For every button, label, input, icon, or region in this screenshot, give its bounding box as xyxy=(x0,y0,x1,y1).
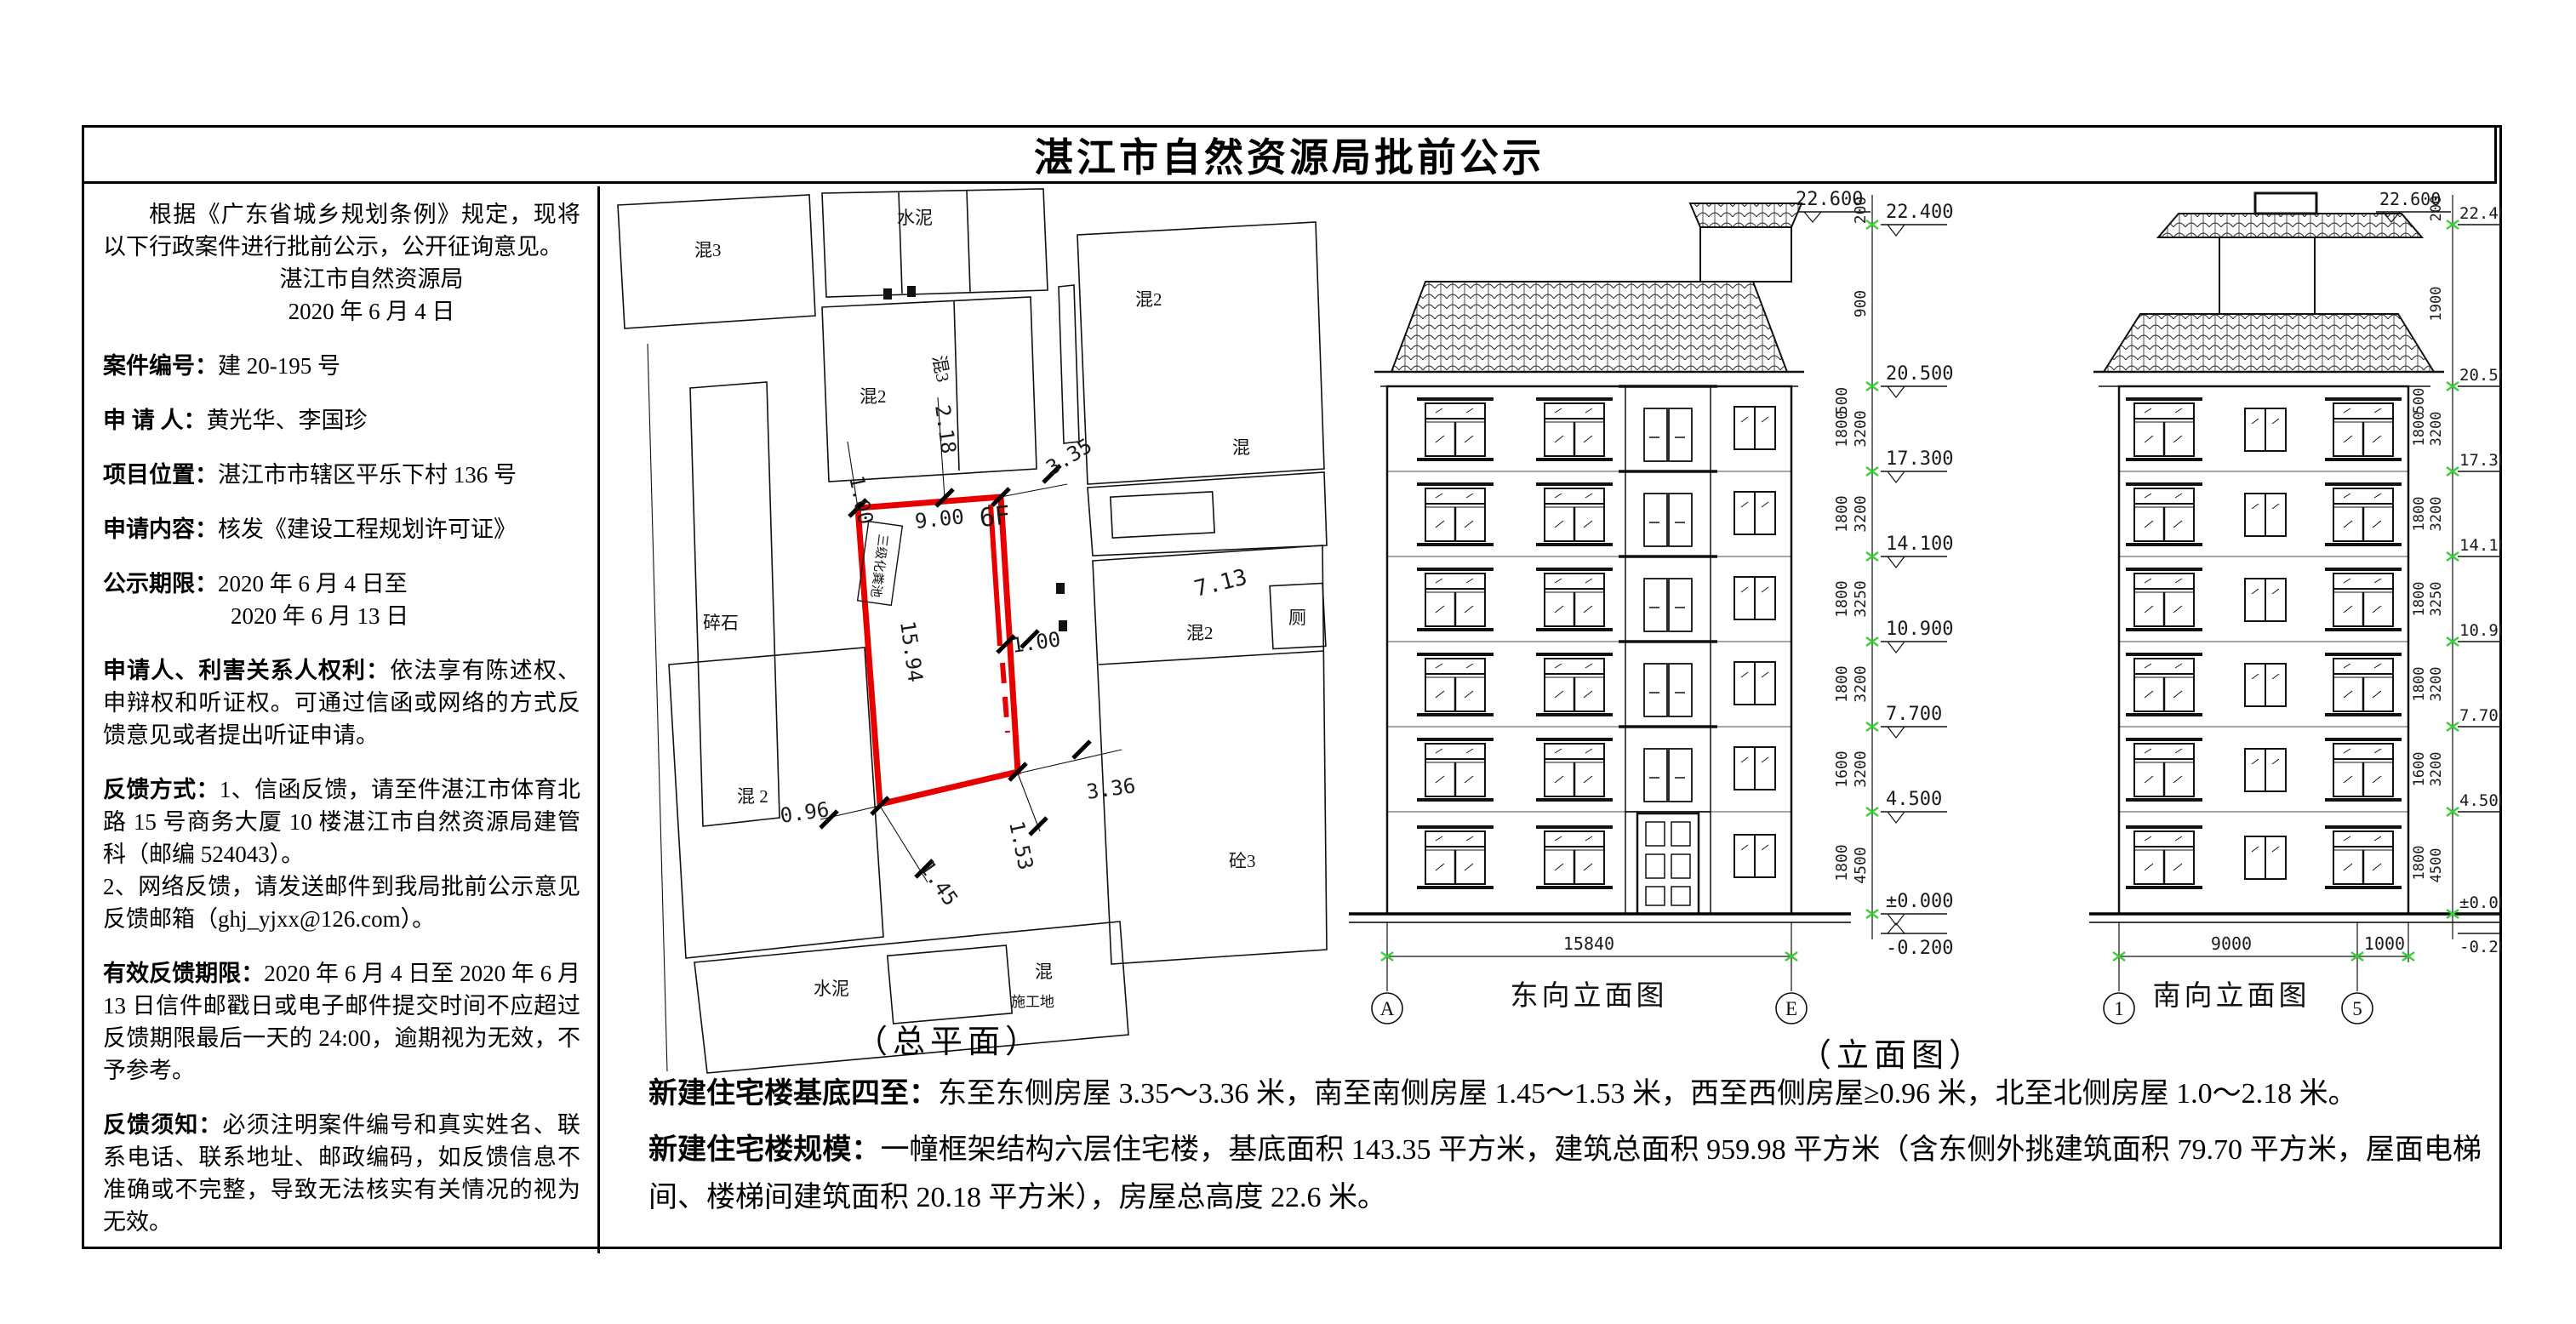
chain-window-dim: 1800 xyxy=(1833,495,1851,532)
footprint-label: 新建住宅楼基底四至： xyxy=(648,1078,938,1110)
chain-sub-dim: 200 xyxy=(2428,196,2445,222)
valid-label: 有效反馈期限： xyxy=(103,961,264,986)
agency-line: 湛江市自然资源局 xyxy=(103,263,580,295)
chain-storey-dim: 3200 xyxy=(2428,497,2445,532)
chain-storey-dim: 3200 xyxy=(1852,750,1870,787)
notice-paragraph: 反馈须知：必须注明案件编号和真实姓名、联系电话、联系地址、邮政编码，如反馈信息不… xyxy=(103,1109,580,1238)
intro-paragraph: 根据《广东省城乡规划条例》规定，现将以下行政案件进行批前公示，公开征询意见。 xyxy=(103,198,580,263)
level-mark: 4.500 xyxy=(1886,789,1942,810)
chain-window-dim: 1800 xyxy=(2411,412,2428,447)
level-mark: 4.500 xyxy=(2459,791,2502,810)
chain-window-dim: 1800 xyxy=(2411,582,2428,617)
case-number-line: 案件编号：建 20-195 号 xyxy=(103,350,580,382)
level-mark: -0.200 xyxy=(1886,938,1953,959)
chain-sub-dim: 1900 xyxy=(2428,287,2445,322)
south-elevation-label: 南向立面图 xyxy=(2153,980,2310,1012)
level-mark: 20.500 xyxy=(2459,366,2502,385)
level-mark: 14.100 xyxy=(1886,534,1953,555)
level-mark: 22.400 xyxy=(2459,204,2502,223)
plan-dim: 1.00 xyxy=(844,473,877,526)
chain-window-dim: 1800 xyxy=(2411,497,2428,532)
level-mark: 7.700 xyxy=(1886,704,1942,725)
level-mark: 20.500 xyxy=(1886,363,1953,385)
plan-dim: 1.00 xyxy=(1010,627,1062,658)
applicant-line: 申 请 人：黄光华、李国珍 xyxy=(103,404,580,437)
chain-storey-dim: 3250 xyxy=(2428,582,2445,617)
feedback-paragraph: 反馈方式：1、信函反馈，请至件湛江市体育北路 15 号商务大厦 10 楼湛江市自… xyxy=(103,773,580,870)
rights-paragraph: 申请人、利害关系人权利：依法享有陈述权、申辩权和听证权。可通过信函或网络的方式反… xyxy=(103,654,580,751)
chain-storey-dim: 4500 xyxy=(2428,848,2445,883)
chain-storey-dim: 3200 xyxy=(1852,410,1870,447)
page-title: 湛江市自然资源局批前公示 xyxy=(1034,127,1545,183)
plan-label: 混2 xyxy=(860,386,887,407)
plan-label: 碎石 xyxy=(703,613,739,633)
level-mark: -0.200 xyxy=(2459,938,2502,956)
plan-dim: 7.13 xyxy=(1191,565,1249,602)
plan-dim: 9.00 xyxy=(914,505,965,534)
chain-window-dim: 1800 xyxy=(2411,667,2428,702)
south-width-dim: 9000 xyxy=(2211,933,2252,954)
plot-floor-count: 6F xyxy=(978,500,1012,534)
site-plan-caption: （总平面） xyxy=(855,1024,1042,1060)
case-number-value: 建 20-195 号 xyxy=(218,353,340,379)
chain-window-dim: 1600 xyxy=(2411,752,2428,787)
plan-dim: 1.45 xyxy=(915,856,962,910)
case-number-label: 案件编号： xyxy=(103,353,218,379)
location-label: 项目位置： xyxy=(103,462,218,488)
announcement-panel: 根据《广东省城乡规划条例》规定，现将以下行政案件进行批前公示，公开征询意见。 湛… xyxy=(84,186,600,1253)
plan-dim: 1.53 xyxy=(1004,819,1037,871)
level-mark: 10.900 xyxy=(1886,619,1953,640)
pre-approval-notice-page: { "title": "湛江市自然资源局批前公示", "left_panel":… xyxy=(0,0,2576,1324)
chain-window-dim: 1800 xyxy=(1833,665,1851,702)
footprint-paragraph: 新建住宅楼基底四至：东至东侧房屋 3.35～3.36 米，南至南侧房屋 1.45… xyxy=(648,1070,2482,1118)
bottom-description: 新建住宅楼基底四至：东至东侧房屋 3.35～3.36 米，南至南侧房屋 1.45… xyxy=(567,1070,2497,1230)
location-value: 湛江市市辖区平乐下村 136 号 xyxy=(218,462,517,488)
chain-storey-dim: 3200 xyxy=(1852,665,1870,702)
scale-text: 一幢框架结构六层住宅楼，基底面积 143.35 平方米，建筑总面积 959.98… xyxy=(648,1134,2482,1213)
building-outline xyxy=(618,195,815,328)
title-bar: 湛江市自然资源局批前公示 xyxy=(82,125,2497,184)
rights-label: 申请人、利害关系人权利： xyxy=(103,658,390,683)
level-mark: 7.700 xyxy=(2459,706,2502,725)
plan-label: 砼3 xyxy=(1229,851,1256,871)
septic-tank-label: 三级化粪池 xyxy=(868,534,890,599)
east-width-dim: 15840 xyxy=(1563,933,1614,954)
period-label: 公示期限： xyxy=(103,571,218,596)
east-elevation: 15840 A E 东向立面图 xyxy=(1349,203,1851,1024)
level-mark: ±0.000 xyxy=(2459,893,2502,912)
chain-storey-dim: 3200 xyxy=(2428,752,2445,787)
chain-window-dim: 1800 xyxy=(1833,580,1851,617)
footprint-text: 东至东侧房屋 3.35～3.36 米，南至南侧房屋 1.45～1.53 米，西至… xyxy=(938,1078,2357,1110)
request-label: 申请内容： xyxy=(103,516,218,542)
level-mark: ±0.000 xyxy=(1886,891,1953,912)
axis-bubble-e: E xyxy=(1785,998,1797,1019)
feedback-label: 反馈方式： xyxy=(103,777,220,802)
plan-dim: 3.35 xyxy=(1042,434,1096,480)
plan-label: 混 xyxy=(1035,962,1053,982)
axis-bubble-5: 5 xyxy=(2352,998,2362,1019)
plan-dim: 2.18 xyxy=(930,403,961,455)
scale-label: 新建住宅楼规模： xyxy=(648,1134,880,1166)
chain-sub-dim: 900 xyxy=(1852,290,1870,318)
site-plan-drawing: 三级化粪池 混3 水泥 混2 混3 混2 混 厕 混2 砼3 碎石 混 2 水泥… xyxy=(567,186,1328,1076)
chain-storey-dim: 3200 xyxy=(2428,412,2445,447)
notice-label: 反馈须知： xyxy=(103,1112,223,1138)
valid-paragraph: 有效反馈期限：2020 年 6 月 4 日至 2020 年 6 月 13 日信件… xyxy=(103,957,580,1087)
chain-sub-dim: 200 xyxy=(1852,197,1870,225)
chain-window-dim: 1800 xyxy=(1833,410,1851,447)
plan-label: 水泥 xyxy=(814,979,849,999)
elevation-drawing: 15840 A E 东向立面图 22.600 22.400 20.500 17.… xyxy=(1328,186,2502,1088)
plan-label: 混3 xyxy=(694,240,722,260)
request-line: 申请内容：核发《建设工程规划许可证》 xyxy=(103,513,580,545)
plan-label: 水泥 xyxy=(897,208,933,228)
period-line2: 2020 年 6 月 13 日 xyxy=(103,600,580,632)
period-from: 2020 年 6 月 4 日至 xyxy=(218,571,408,596)
east-elevation-label: 东向立面图 xyxy=(1511,980,1668,1012)
chain-sub-dim: 500 xyxy=(2411,388,2428,414)
south-side-dim: 1000 xyxy=(2364,933,2405,954)
plan-label: 施工地 xyxy=(1011,994,1054,1010)
level-mark: 22.400 xyxy=(1886,202,1953,223)
period-line: 公示期限：2020 年 6 月 4 日至 xyxy=(103,568,580,600)
level-mark: 14.100 xyxy=(2459,536,2502,555)
plan-label: 混 2 xyxy=(737,786,768,807)
level-mark: 17.300 xyxy=(2459,451,2502,470)
chain-storey-dim: 3200 xyxy=(2428,667,2445,702)
east-dim-chain: 22.600 22.400 20.500 17.300 14.100 10.90… xyxy=(1796,189,1953,959)
chain-storey-dim: 3250 xyxy=(1852,580,1870,617)
axis-bubble-a: A xyxy=(1380,998,1395,1019)
axis-bubble-1: 1 xyxy=(2114,998,2124,1019)
scale-paragraph: 新建住宅楼规模：一幢框架结构六层住宅楼，基底面积 143.35 平方米，建筑总面… xyxy=(648,1127,2482,1222)
feedback-net-line: 2、网络反馈，请发送邮件到我局批前公示意见反馈邮箱（ghj_yjxx@126.c… xyxy=(103,870,580,935)
applicant-value: 黄光华、李国珍 xyxy=(207,408,368,433)
chain-window-dim: 1800 xyxy=(2411,846,2428,881)
chain-storey-dim: 4500 xyxy=(1852,847,1870,883)
date-line: 2020 年 6 月 4 日 xyxy=(103,295,580,328)
plan-label: 混 xyxy=(1232,437,1250,458)
request-value: 核发《建设工程规划许可证》 xyxy=(218,516,517,542)
plan-dim: 3.36 xyxy=(1085,773,1137,804)
elevation-caption: （立面图） xyxy=(1799,1038,1986,1074)
plan-label: 混2 xyxy=(1135,289,1162,310)
chain-window-dim: 1800 xyxy=(1833,844,1851,881)
chain-storey-dim: 3200 xyxy=(1852,495,1870,532)
plot-depth-dim: 15.94 xyxy=(895,619,928,683)
level-mark: 17.300 xyxy=(1886,448,1953,470)
plan-label: 混2 xyxy=(1186,623,1214,643)
level-mark: 10.900 xyxy=(2459,621,2502,640)
location-line: 项目位置：湛江市市辖区平乐下村 136 号 xyxy=(103,459,580,491)
plan-label: 厕 xyxy=(1288,608,1306,628)
chain-window-dim: 1600 xyxy=(1833,750,1851,787)
applicant-label: 申 请 人： xyxy=(103,408,207,433)
plan-label: 混3 xyxy=(928,354,953,384)
